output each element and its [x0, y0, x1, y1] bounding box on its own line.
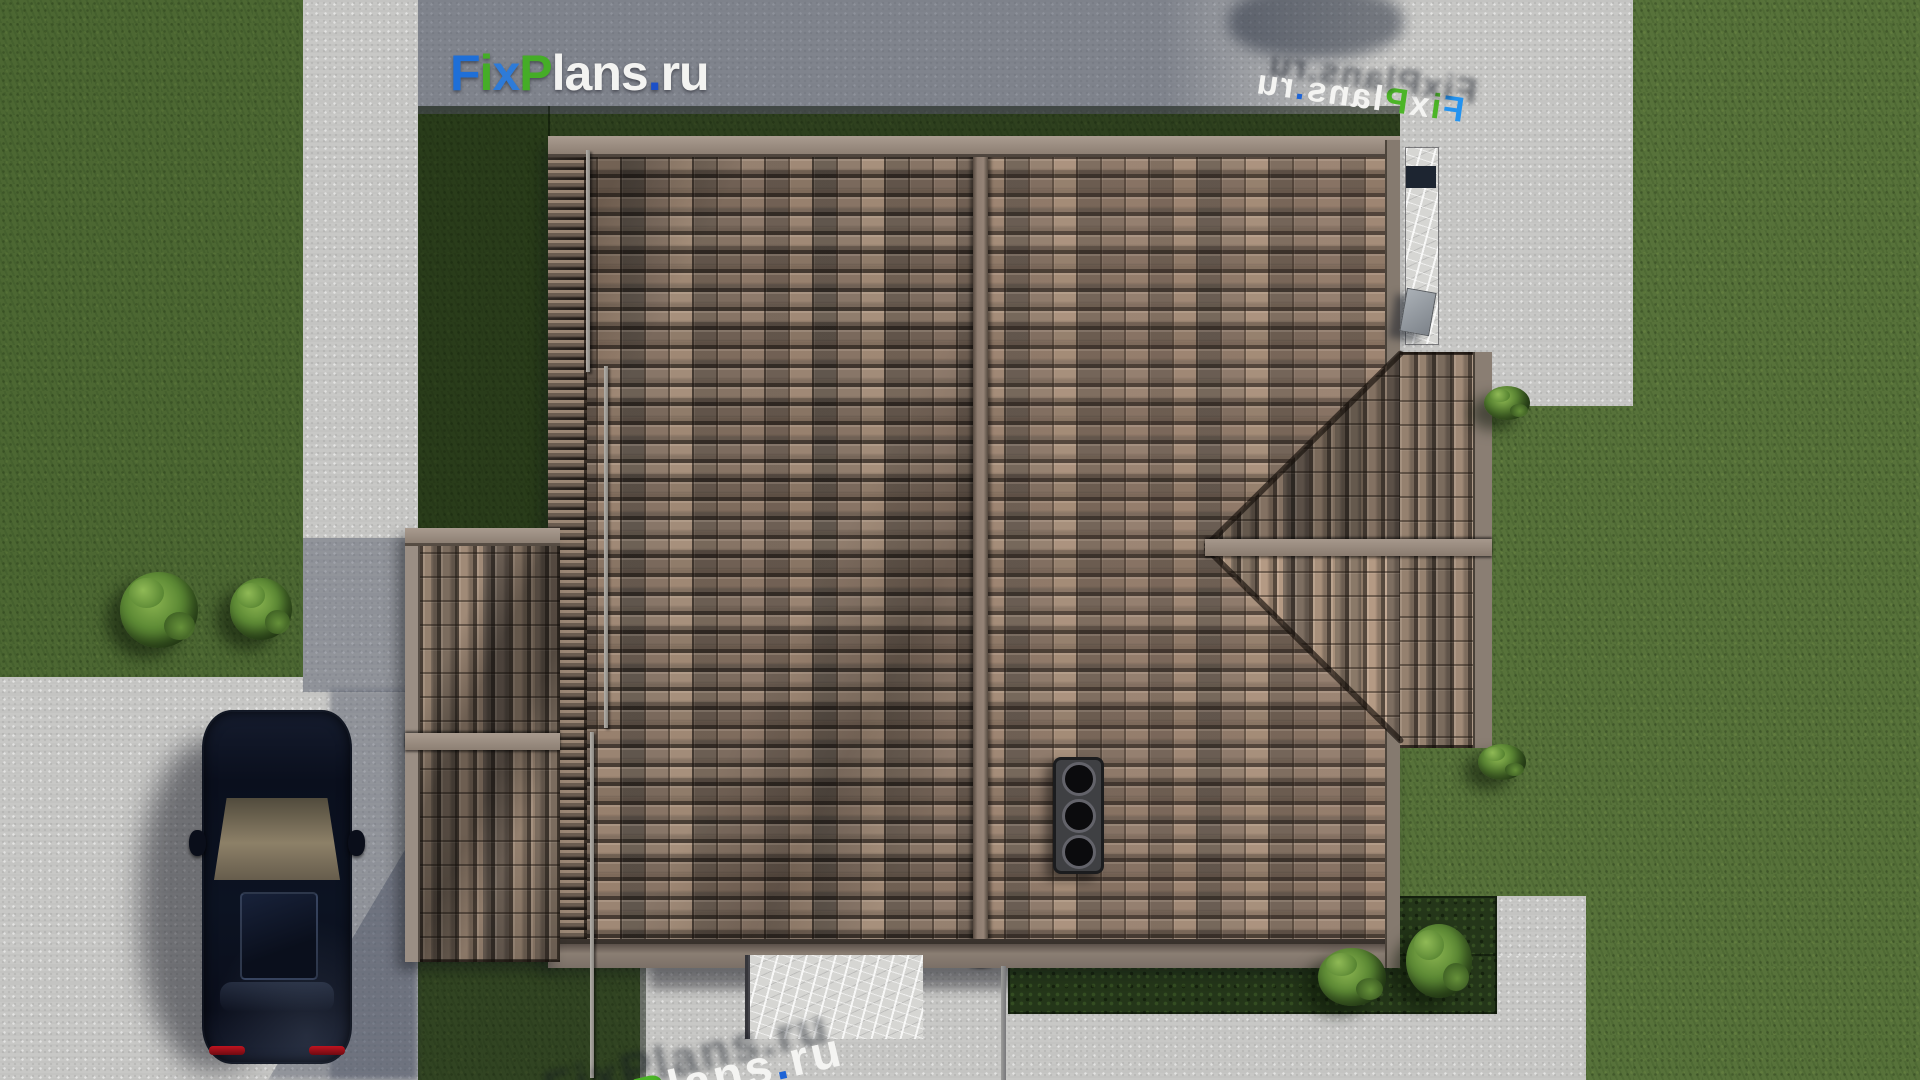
- car-sunroof: [240, 892, 318, 980]
- letter-segment: .: [648, 45, 661, 101]
- chimney: [1053, 757, 1104, 874]
- car-mirror-right: [348, 830, 365, 856]
- roof-bottom-fascia: [548, 939, 1400, 968]
- letter-segment: lans: [552, 45, 648, 101]
- car-taillight-left: [209, 1046, 245, 1055]
- car-top-view: [202, 710, 352, 1064]
- letter-segment: ru: [661, 45, 709, 101]
- bush: [1406, 924, 1472, 998]
- chimney-flue: [1062, 835, 1096, 869]
- car-taillight-right: [309, 1046, 345, 1055]
- roof-pipe: [586, 150, 590, 372]
- bush: [230, 578, 292, 640]
- car-mirror-left: [189, 830, 206, 856]
- annex-divider-ridge: [405, 733, 560, 750]
- roof-shadow-overlay: [548, 140, 978, 968]
- roof-pipe: [604, 366, 608, 728]
- bush: [1478, 744, 1526, 780]
- concrete-bottom-right-path: [1497, 896, 1586, 956]
- roof-center-ridge: [973, 140, 988, 968]
- chimney-flue: [1062, 762, 1096, 796]
- letter-segment: P: [1380, 80, 1411, 122]
- annex-roof: [405, 528, 560, 962]
- bush: [120, 572, 198, 648]
- roof-plan-render: FixPlans.ru FixPlans.ru FixPlans.ru: [0, 0, 1920, 1080]
- roof-top-ridge-cap: [548, 136, 1400, 157]
- letter-segment: x: [492, 45, 519, 101]
- basement-window: [1406, 166, 1436, 188]
- bush: [1318, 948, 1386, 1006]
- letter-segment: P: [519, 45, 551, 101]
- wing-ridge-cap: [1205, 539, 1492, 556]
- letter-segment: i: [480, 45, 493, 101]
- downspout-pole: [1001, 966, 1006, 1080]
- car-rear-window: [220, 982, 334, 1012]
- roof-pipe: [590, 732, 594, 1078]
- chimney-flue: [1062, 799, 1096, 833]
- concrete-left-path: [303, 0, 418, 692]
- fixplans-logo: FixPlans.ru: [450, 44, 709, 102]
- bush: [1484, 386, 1530, 420]
- annex-top-ridge-cap: [405, 528, 560, 546]
- letter-segment: F: [450, 45, 480, 101]
- letter-segment: ru: [1253, 62, 1297, 106]
- car-windshield: [214, 798, 340, 880]
